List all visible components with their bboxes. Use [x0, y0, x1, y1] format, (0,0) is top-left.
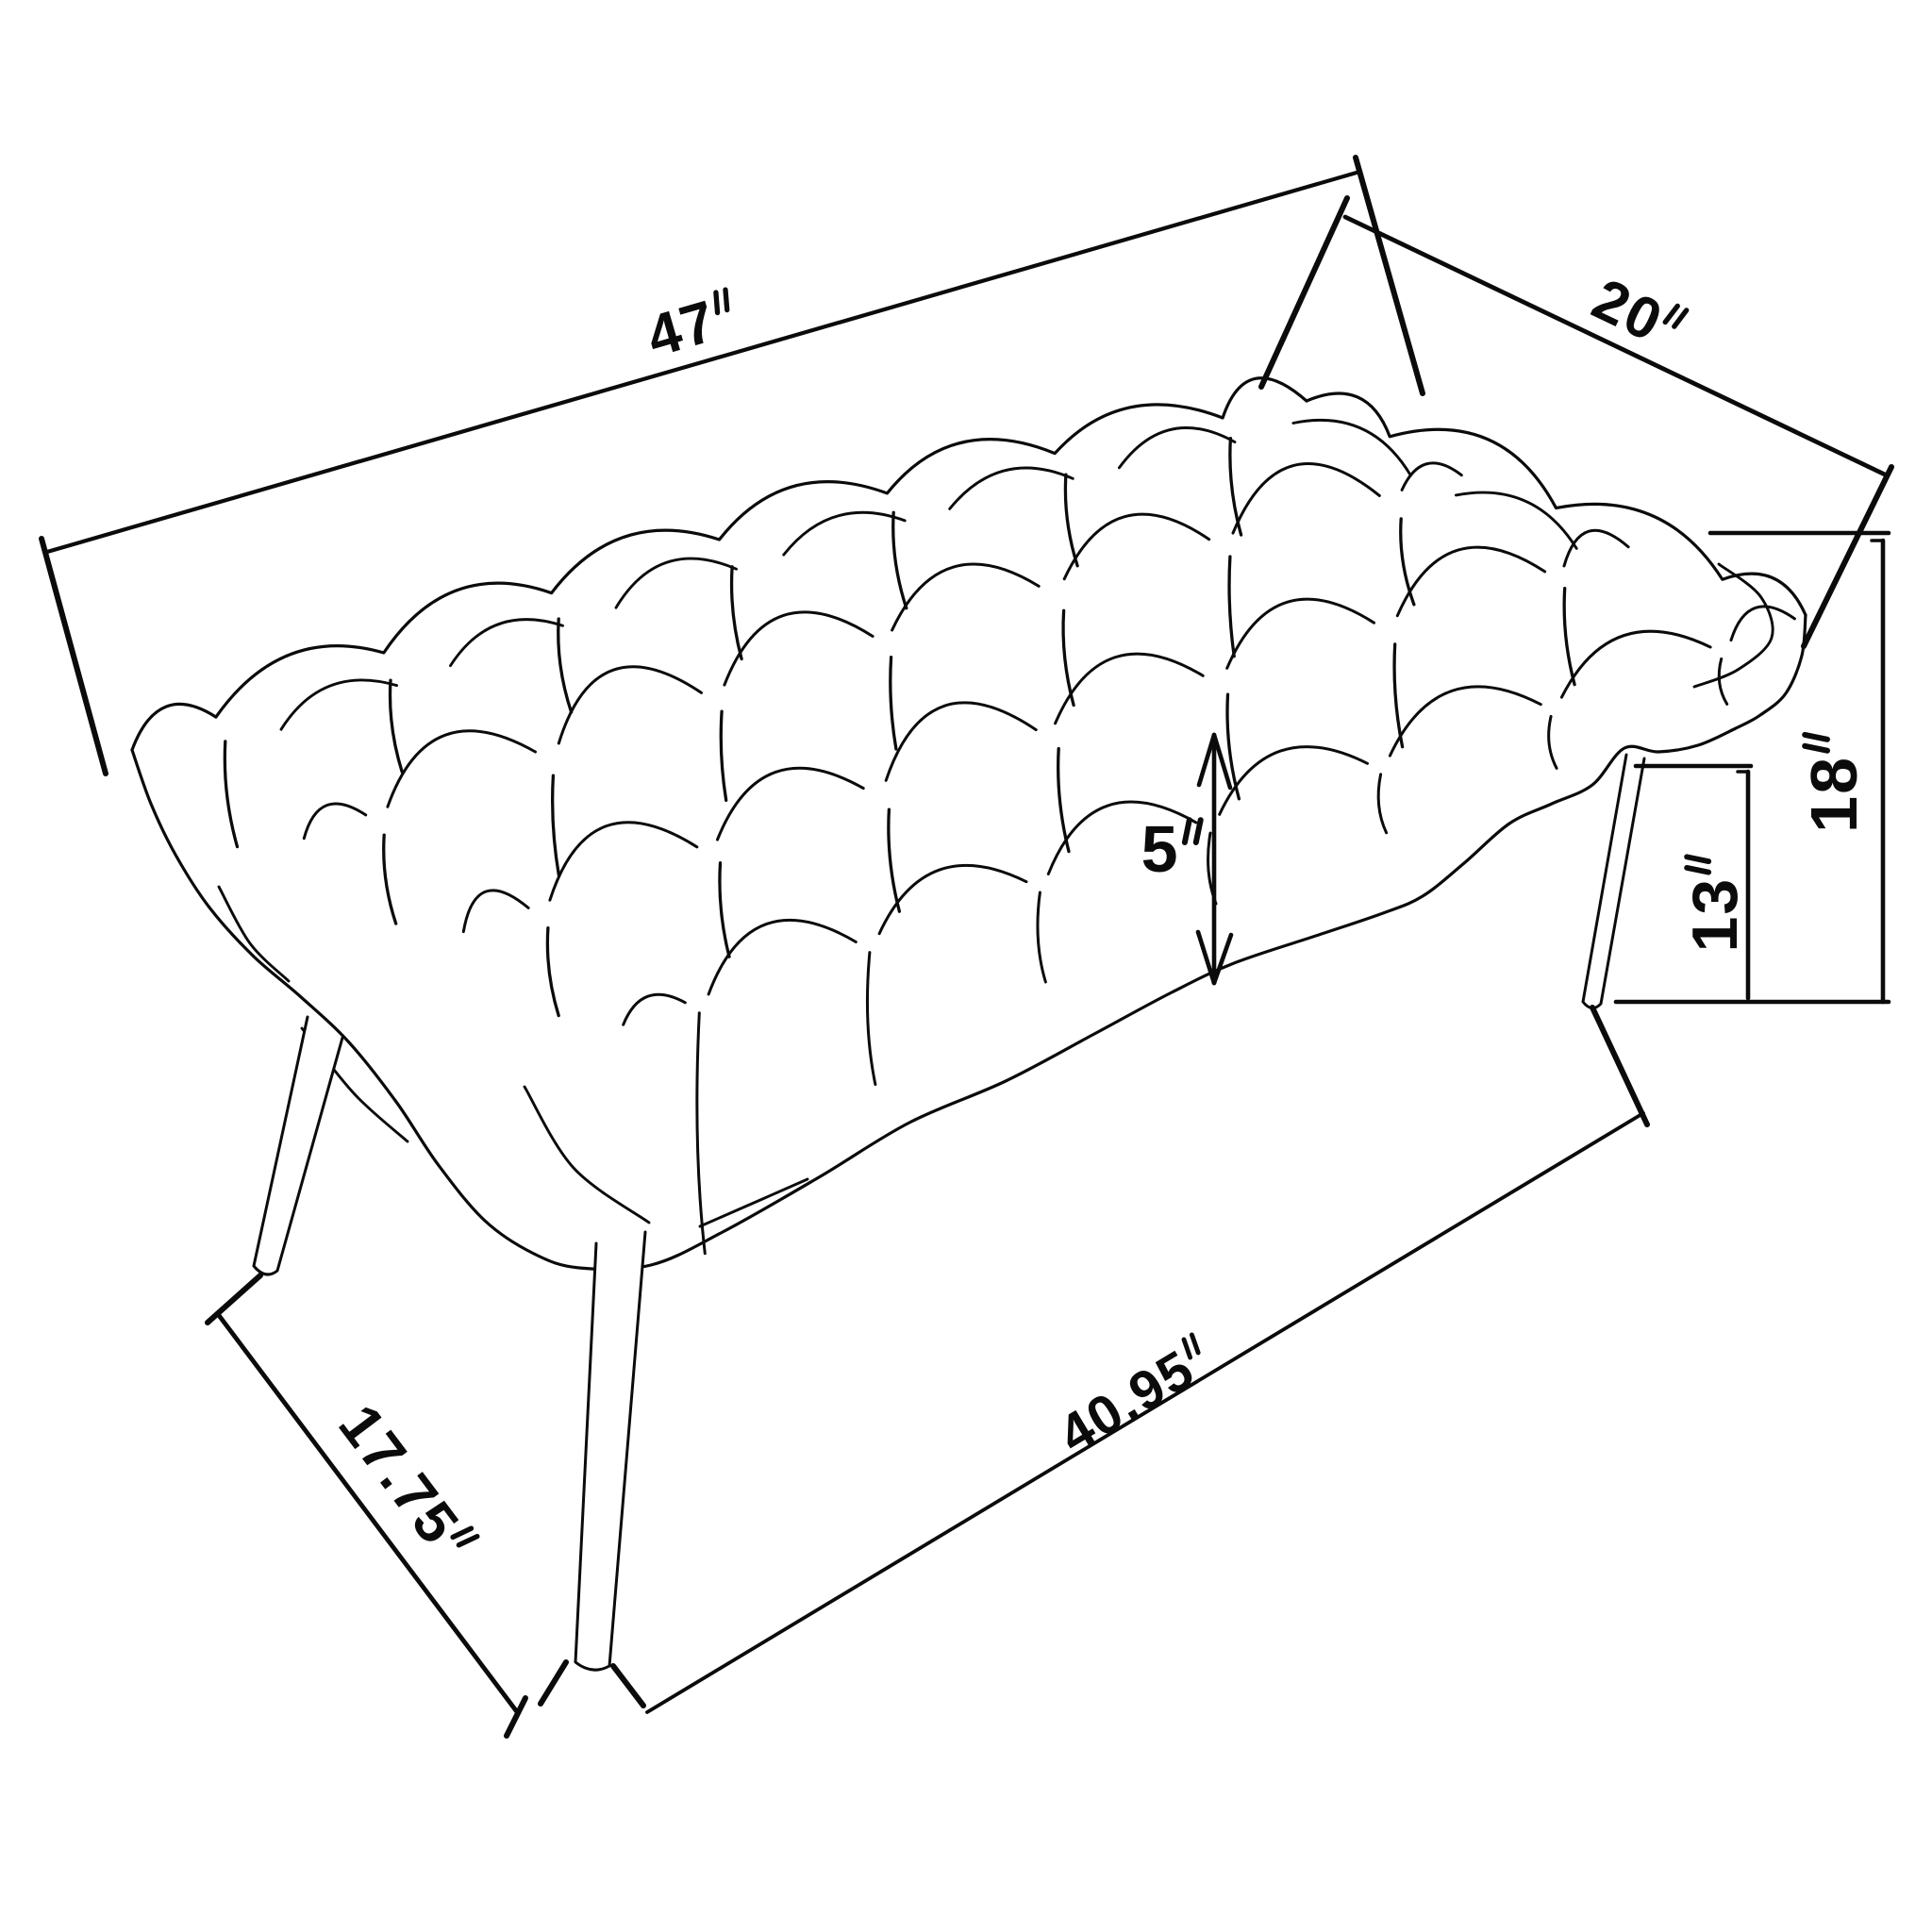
- svg-text:20: 20: [1583, 267, 1674, 356]
- svg-text:18: 18: [1797, 756, 1871, 833]
- svg-text:17.75: 17.75: [325, 1393, 471, 1557]
- svg-text:5: 5: [1141, 812, 1180, 886]
- svg-text:40.95: 40.95: [1048, 1338, 1205, 1466]
- svg-text:13: 13: [1679, 877, 1751, 953]
